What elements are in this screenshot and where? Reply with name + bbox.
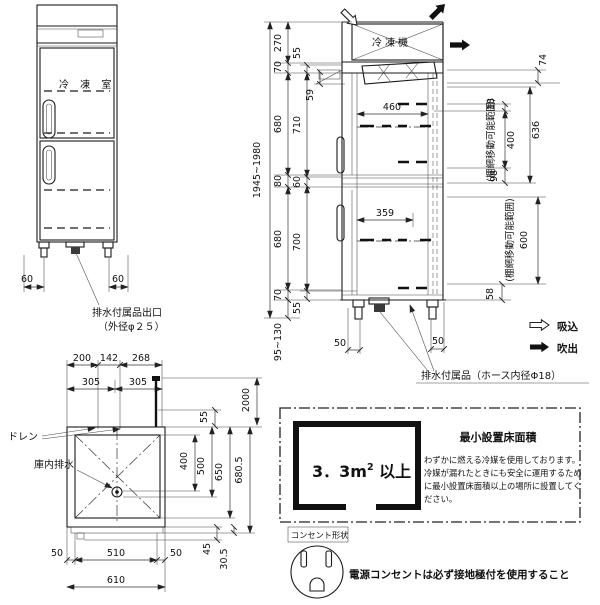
dim-142: 142 xyxy=(100,353,118,364)
dim-510: 510 xyxy=(107,548,125,559)
dim-650: 650 xyxy=(214,463,225,481)
dim-55-plan: 55 xyxy=(199,411,210,423)
drain-outlet-label: 排水付属品出口 xyxy=(92,306,162,319)
dim-359: 359 xyxy=(376,208,394,219)
dim-400-shelf: 400 xyxy=(506,131,517,149)
dim-leg-left: 60 xyxy=(21,274,33,285)
shelf-range-upper-label: (棚網移動可能範囲) xyxy=(485,98,497,181)
dim-460: 460 xyxy=(383,102,401,113)
dim-70-top: 70 xyxy=(273,61,284,73)
dim-55-bottom: 55 xyxy=(292,302,303,314)
dim-58: 58 xyxy=(485,288,496,300)
drain-label: ドレン xyxy=(8,432,38,443)
legend-suction-label: 吸込 xyxy=(557,320,578,333)
dim-leg50-right: 50 xyxy=(432,336,444,347)
dim-50-left: 50 xyxy=(51,548,63,559)
area-text: 3．3m2 以上 xyxy=(312,462,411,481)
dim-60: 60 xyxy=(292,176,303,188)
dim-600-shelf: 600 xyxy=(519,231,530,249)
drawing-canvas: 冷 凍 室 60 60 排水付属品出口 （外径φ２５） xyxy=(0,0,600,600)
freezer-spec-drawing: 冷 凍 室 60 60 排水付属品出口 （外径φ２５） xyxy=(0,0,600,600)
dim-2000: 2000 xyxy=(241,388,252,412)
dim-680-bottom: 680 xyxy=(273,230,284,248)
dim-legs-height: 95~130 xyxy=(273,323,284,361)
floor-area-note-3: に最小設置床面積以上の場所に設置してく xyxy=(424,481,581,491)
dim-636: 636 xyxy=(531,121,542,139)
hose-end xyxy=(152,376,160,381)
dim-610: 610 xyxy=(107,575,125,586)
interior-drain-label: 庫内排水 xyxy=(34,458,74,471)
outlet-note: 電源コンセントは必ず接地極付を使用すること xyxy=(349,568,570,581)
legend-blowout-label: 吹出 xyxy=(557,342,578,355)
dim-268: 268 xyxy=(132,353,150,364)
freezer-room-label: 冷 凍 室 xyxy=(59,78,115,91)
dim-200: 200 xyxy=(73,353,91,364)
dim-680-5: 680.5 xyxy=(234,456,245,483)
condenser-label: 冷凍機 xyxy=(372,36,411,49)
floor-area-heading: 最小設置床面積 xyxy=(460,430,538,444)
dim-98: 98 xyxy=(489,170,500,182)
dim-overall-height: 1945~1980 xyxy=(252,142,263,198)
dim-74: 74 xyxy=(538,54,549,66)
dim-59: 59 xyxy=(305,89,316,101)
dim-80: 80 xyxy=(273,175,284,187)
dim-70-bottom: 70 xyxy=(273,289,284,301)
dim-leg50-left: 50 xyxy=(334,338,346,349)
outlet-shape-label: コンセント形状 xyxy=(291,530,348,540)
floor-area-note-1: わずかに燃える冷媒を使用しております。 xyxy=(424,455,580,465)
drain-hose-label: 排水付属品（ホース内径Φ18） xyxy=(421,369,561,382)
dim-55-top: 55 xyxy=(292,47,303,59)
dim-50-right: 50 xyxy=(170,548,182,559)
dim-680-top: 680 xyxy=(273,115,284,133)
dim-270: 270 xyxy=(273,34,284,52)
dim-45: 45 xyxy=(202,543,213,555)
shelf-range-lower-label: (棚網移動可能範囲) xyxy=(504,198,516,281)
dim-710: 710 xyxy=(292,116,303,134)
floor-area-note-4: ださい。 xyxy=(424,494,457,504)
floor-area-note-2: 冷媒が漏れたときにも安全に運用するため xyxy=(424,468,582,478)
dim-400-plan: 400 xyxy=(179,452,190,470)
dim-700: 700 xyxy=(292,233,303,251)
dim-leg-right: 60 xyxy=(112,274,124,285)
dim-305-left: 305 xyxy=(82,377,100,388)
drain-outlet-diameter: （外径φ２５） xyxy=(98,320,165,333)
dim-30-5: 30.5 xyxy=(219,548,230,569)
dim-500: 500 xyxy=(196,457,207,475)
dim-305-right: 305 xyxy=(129,377,147,388)
